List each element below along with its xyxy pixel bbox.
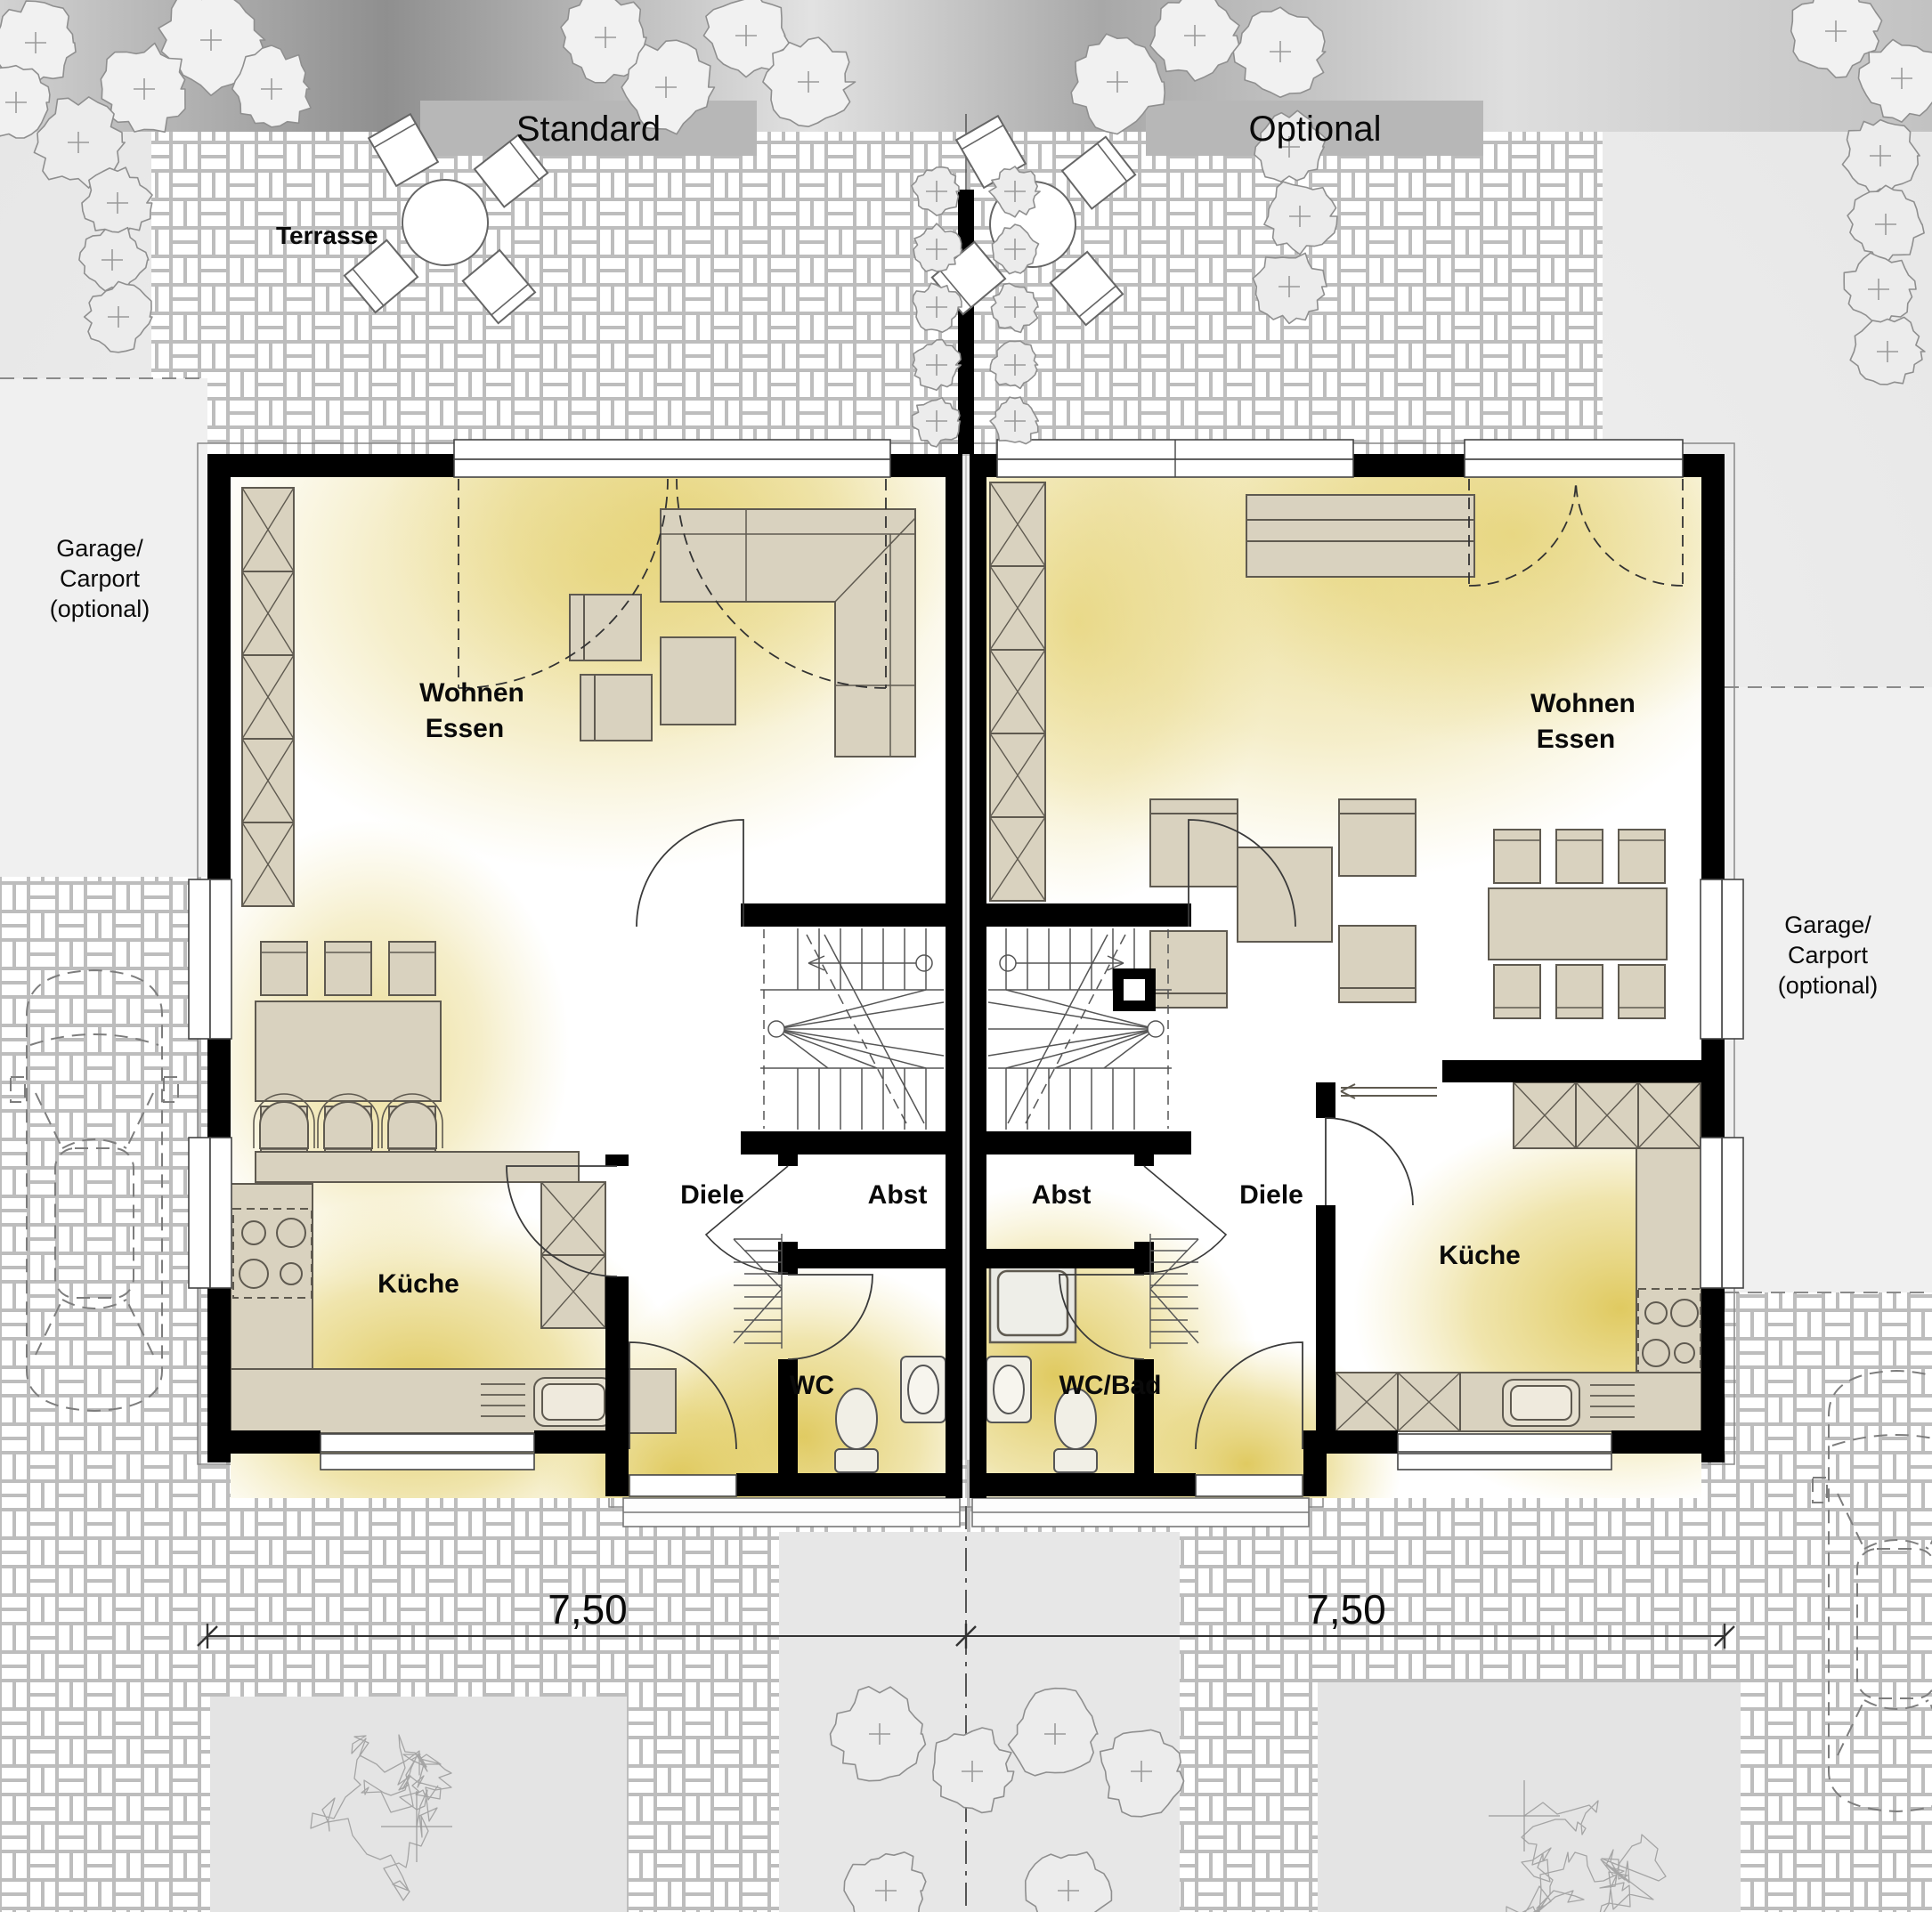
garage-label-left: Garage/ Carport (optional) xyxy=(50,535,150,622)
armchair-icon xyxy=(1339,926,1416,1002)
svg-text:Essen: Essen xyxy=(426,714,504,743)
bar-stools-icon xyxy=(254,1094,442,1148)
side-table-icon xyxy=(1238,847,1332,942)
shower-icon xyxy=(990,1264,1076,1342)
room-label-wc-right: WC/Bad xyxy=(1059,1371,1162,1400)
toilet-icon xyxy=(835,1389,878,1472)
room-label-living-right: Wohnen xyxy=(1530,689,1636,718)
standard-header: Standard xyxy=(516,109,661,149)
garage-label-right: Garage/ Carport (optional) xyxy=(1778,911,1879,999)
kitchen-cabinet-icon xyxy=(1335,1373,1460,1431)
svg-text:Garage/: Garage/ xyxy=(1784,911,1871,938)
armchair-icon xyxy=(1339,799,1416,876)
room-label-wc-left: WC xyxy=(790,1371,834,1400)
room-label-kitchen-left: Küche xyxy=(377,1269,459,1299)
planting-square-right xyxy=(1318,1682,1741,1912)
room-label-hall-left: Diele xyxy=(680,1180,744,1210)
bar-counter-icon xyxy=(256,1152,579,1182)
entry-steps xyxy=(623,1498,960,1527)
room-label-living-left: Wohnen xyxy=(419,678,524,708)
svg-text:Garage/: Garage/ xyxy=(56,535,143,562)
svg-text:Carport: Carport xyxy=(1788,942,1869,968)
floor-plan-image: Standard Optional Terrasse Garage/ Carpo… xyxy=(0,0,1932,1912)
floor-plan-svg: Standard Optional Terrasse Garage/ Carpo… xyxy=(0,0,1932,1912)
armchair-icon xyxy=(1150,799,1238,887)
shelf-unit-icon xyxy=(242,488,294,906)
dining-set-icon xyxy=(1489,830,1667,1018)
garage-area-left xyxy=(0,378,207,877)
coffee-table-icon xyxy=(661,637,735,725)
room-label-hall-right: Diele xyxy=(1239,1180,1303,1210)
svg-text:Carport: Carport xyxy=(60,565,141,592)
garden-wall xyxy=(958,190,974,454)
wardrobe-icon xyxy=(990,482,1045,901)
svg-text:(optional): (optional) xyxy=(1778,972,1879,999)
armchair-icon xyxy=(580,675,652,741)
optional-header: Optional xyxy=(1249,109,1382,149)
room-label-kitchen-right: Küche xyxy=(1439,1241,1521,1270)
washbasin-icon xyxy=(901,1357,946,1422)
terrace-label: Terrasse xyxy=(276,222,378,249)
kitchen-cabinet-icon xyxy=(1514,1082,1701,1148)
flue-icon xyxy=(1124,979,1145,1001)
room-label-storage-right: Abst xyxy=(1032,1180,1092,1210)
dimension-label-right: 7,50 xyxy=(1306,1586,1386,1632)
room-label-storage-left: Abst xyxy=(868,1180,928,1210)
svg-text:Essen: Essen xyxy=(1537,725,1615,754)
sideboard-icon xyxy=(1246,495,1474,577)
armchair-icon xyxy=(570,595,641,660)
dimension-label-left: 7,50 xyxy=(548,1586,628,1632)
planting-square-left xyxy=(210,1697,627,1912)
svg-text:(optional): (optional) xyxy=(50,595,150,622)
kitchen-counter-icon xyxy=(1636,1148,1701,1375)
armchair-icon xyxy=(1150,931,1227,1008)
